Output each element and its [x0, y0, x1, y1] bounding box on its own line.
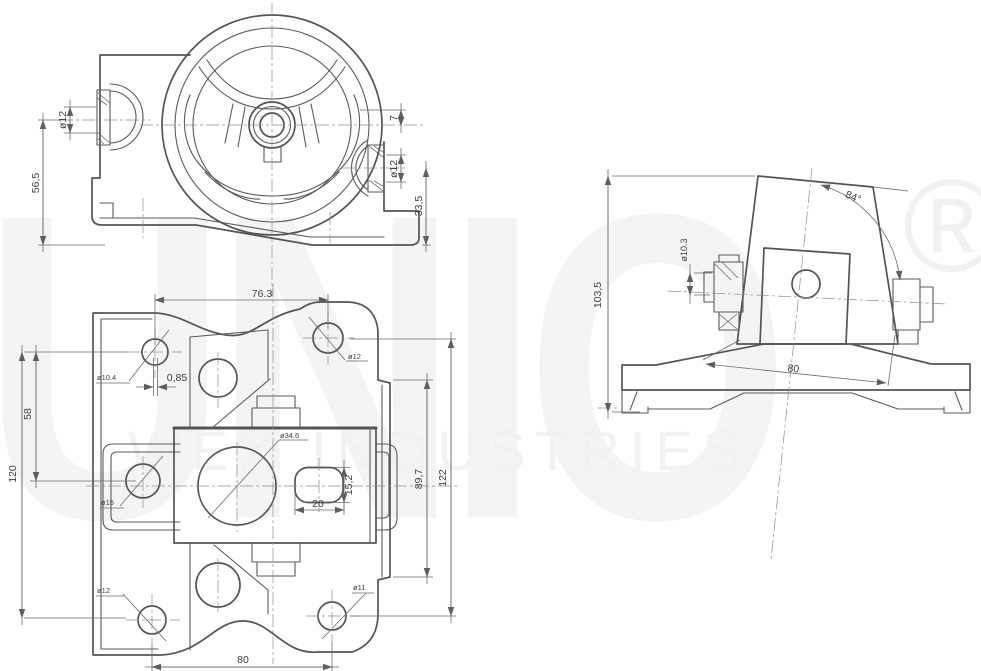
dim-top-overall-height-right: 122: [437, 469, 449, 487]
center-column-bottom: [190, 543, 268, 650]
dim-ext-overall-left: [22, 345, 126, 625]
dim-ext-base-width: [703, 335, 895, 386]
dim-top-flange-height: 89,7: [413, 469, 425, 490]
top-stud: [252, 396, 300, 427]
dim-top-hole-bottom-right: ø11: [353, 583, 365, 592]
dim-top-center-bore: ø34.6: [280, 431, 299, 440]
dim-ext-angle: [873, 187, 908, 191]
damper-side-arcs: [184, 95, 359, 160]
dim-top-slot-width: 20: [312, 498, 324, 510]
dim-ext-left-spacing: [24, 345, 136, 488]
center-bore-leader: [208, 440, 308, 518]
dim-top-hole-top-left: ø10.4: [97, 373, 116, 382]
side-base-lower-profile: [622, 390, 970, 413]
right-bracket: [376, 444, 397, 530]
dim-ext-side-height: [608, 169, 755, 419]
dim-top-hole-spacing: 76.3: [252, 288, 273, 300]
top-plate-flange-inner: [101, 319, 158, 649]
dim-top-overall-height-left: 120: [7, 465, 19, 483]
front-base-notch: [100, 203, 113, 217]
dim-top-slot-height: 15,2: [343, 475, 355, 496]
front-left-boss-dome: [110, 84, 143, 150]
dim-top-hole-top-right: ø12: [348, 352, 361, 361]
side-right-stud: [893, 279, 933, 344]
front-left-boss: [97, 90, 110, 145]
drawing-sheet: UNIO ® WEX INDUSTRIES: [0, 0, 981, 671]
top-view: ø15 ø10.4 ø12 ø12 ø11: [7, 284, 458, 671]
front-left-boss-hatch: [97, 92, 110, 144]
left-bracket: [103, 444, 180, 530]
side-left-stud: [704, 255, 743, 330]
dim-top-hole-bottom-left: ø12: [97, 586, 110, 595]
dim-ext-front-height: [38, 113, 105, 252]
dim-front-top-offset: 7: [388, 115, 400, 121]
front-body-outline: [92, 55, 419, 245]
dim-top-bracket-hole: ø15: [101, 498, 114, 507]
bottom-stud: [252, 543, 300, 576]
dim-side-stud-dia: ø10.3: [679, 238, 689, 261]
side-view: 103,5 ø10.3 84° 80: [592, 168, 970, 560]
center-column-top: [190, 330, 270, 428]
front-right-boss-hatch: [369, 146, 383, 191]
front-view: ø12 56,5 7 ø12 33,5: [30, 3, 431, 296]
dim-side-overall-height: 103,5: [592, 282, 604, 308]
dim-side-tilt-angle: 84°: [844, 189, 863, 206]
dim-front-boss-right-dia: ø12: [388, 160, 400, 178]
side-hole: [792, 270, 820, 298]
dim-ext-stud-dia: [690, 264, 712, 304]
dim-top-bottom-spacing: 80: [237, 654, 249, 666]
dim-top-left-spacing: 58: [22, 408, 34, 420]
dim-side-base-width: 80: [787, 362, 800, 375]
dim-front-overall-height: 56,5: [30, 173, 42, 194]
dim-top-edge-offset: 0,85: [167, 372, 188, 384]
dim-ext-edge-offset: [154, 358, 158, 396]
cad-drawing: ø12 56,5 7 ø12 33,5: [0, 0, 981, 671]
dim-front-boss-right-height: 33,5: [413, 196, 425, 217]
hub-stem: [264, 147, 281, 162]
front-base-inner-line: [100, 218, 384, 237]
